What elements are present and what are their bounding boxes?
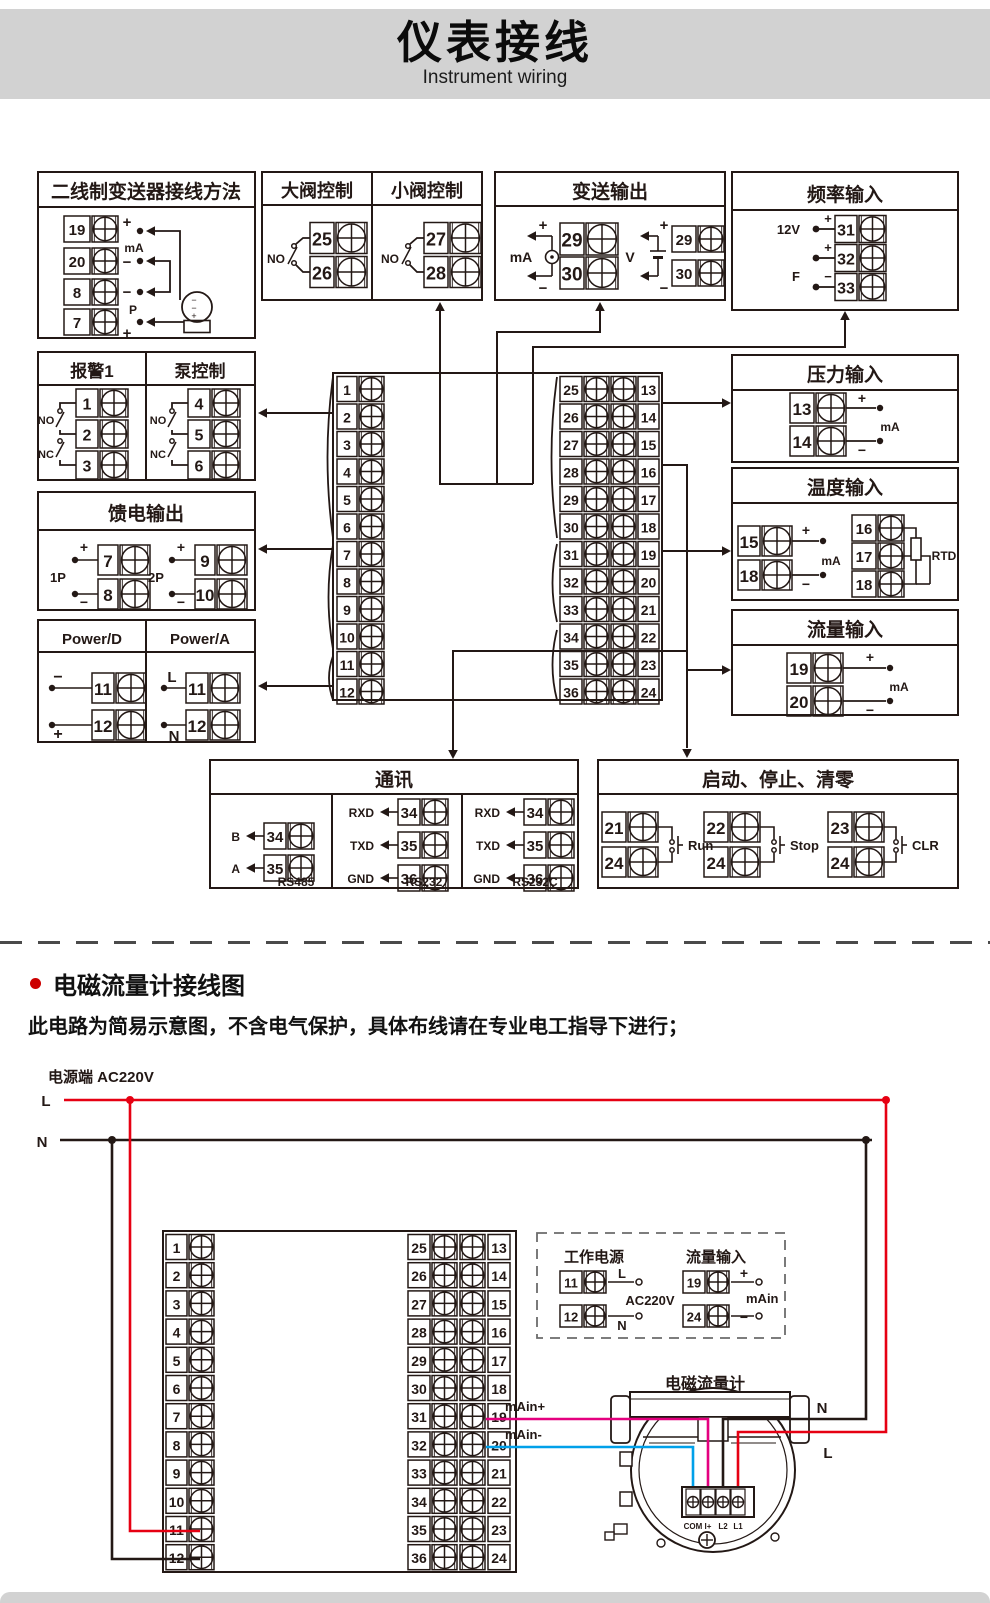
terminal-number: 17 xyxy=(491,1353,507,1369)
terminal-cell: 26 xyxy=(310,257,334,288)
terminal-cell: 35 xyxy=(398,832,420,858)
terminal-cell: 21 xyxy=(488,1460,510,1485)
label: + xyxy=(123,325,132,342)
port-type-label: RS485 xyxy=(278,875,315,889)
screw-terminal-icon xyxy=(854,847,884,877)
terminal-number: 24 xyxy=(687,1309,702,1324)
terminal-cell: 10 xyxy=(337,624,357,649)
arrowhead xyxy=(258,408,267,418)
box-title: 压力输入 xyxy=(807,363,883,386)
terminal-number: 2 xyxy=(173,1268,181,1284)
terminal-cell: 33 xyxy=(560,597,582,622)
label: − xyxy=(177,594,185,610)
label: + xyxy=(740,1265,748,1281)
terminal-cell: 36 xyxy=(408,1545,430,1570)
label: AC220V xyxy=(625,1293,674,1308)
terminal-number: 20 xyxy=(641,575,657,591)
terminal-number: 26 xyxy=(411,1268,427,1284)
arrowhead xyxy=(146,226,155,236)
screw-terminal-icon xyxy=(210,710,240,740)
box-title: 小阀控制 xyxy=(391,180,463,201)
terminal-number: 13 xyxy=(641,382,657,398)
screw-terminal-icon xyxy=(878,515,904,541)
label: N xyxy=(169,728,180,745)
terminal-cell: 2 xyxy=(166,1263,187,1288)
terminal-number: 2 xyxy=(343,410,351,426)
wire xyxy=(168,412,176,427)
terminal-number: 24 xyxy=(707,854,726,873)
screw-terminal-icon xyxy=(432,1319,457,1344)
label: NC xyxy=(150,449,166,461)
terminal-number: 21 xyxy=(491,1466,507,1482)
wire xyxy=(884,853,896,862)
label: + xyxy=(177,539,185,555)
terminal-number: 27 xyxy=(426,229,446,249)
box-start-stop-clear: 启动、停止、清零 xyxy=(598,760,958,888)
open-terminal xyxy=(772,840,776,844)
screw-terminal-icon xyxy=(584,432,609,457)
box-title: 启动、停止、清零 xyxy=(702,768,855,791)
terminal-number: 33 xyxy=(411,1466,427,1482)
junction-dot xyxy=(137,258,143,264)
port-type-label: RS232C xyxy=(512,875,558,889)
terminal-cell: 19 xyxy=(638,542,659,567)
terminal-number: 11 xyxy=(188,680,206,699)
screw-terminal-icon xyxy=(212,389,240,417)
terminal-cell: 26 xyxy=(560,404,582,429)
screw-terminal-icon xyxy=(460,1432,485,1457)
label: L xyxy=(618,1266,626,1281)
terminal-number: 4 xyxy=(343,465,351,481)
label: TXD xyxy=(476,839,500,853)
terminal-number: 26 xyxy=(563,410,579,426)
terminal-cell: 14 xyxy=(638,404,659,429)
open-terminal xyxy=(170,439,174,443)
label: + xyxy=(866,649,874,665)
screw-terminal-icon xyxy=(359,514,384,539)
screw-terminal-icon xyxy=(120,545,150,575)
terminal-number: 25 xyxy=(563,382,579,398)
terminal-cell: 8 xyxy=(64,279,90,305)
terminal-cell: 2 xyxy=(76,420,98,448)
terminal-cell: 13 xyxy=(488,1235,510,1260)
terminal-cell: 15 xyxy=(488,1291,510,1316)
terminal-number: 3 xyxy=(83,459,92,476)
terminal-cell: 12 xyxy=(186,710,208,740)
wire xyxy=(172,430,188,434)
terminal-cell: 7 xyxy=(98,545,118,575)
screw-terminal-icon xyxy=(189,1347,214,1372)
screw-terminal-icon xyxy=(116,673,146,703)
label: L xyxy=(41,1093,50,1110)
screw-terminal-icon xyxy=(359,487,384,512)
label: mAin xyxy=(746,1291,779,1306)
arrowhead xyxy=(640,271,649,281)
label: − xyxy=(824,269,832,284)
terminal-cell: 35 xyxy=(560,652,582,677)
screw-terminal-icon xyxy=(359,597,384,622)
terminal-number: 31 xyxy=(411,1409,427,1425)
screw-terminal-icon xyxy=(92,279,118,305)
label: mA xyxy=(889,680,909,694)
terminal-cell: 34 xyxy=(264,823,286,849)
page: 仪表接线 Instrument wiring 二线制变送器接线方法192087+… xyxy=(0,0,990,1603)
terminal-number: 1 xyxy=(173,1240,181,1256)
arrowhead xyxy=(146,317,155,327)
open-terminal xyxy=(58,409,62,413)
terminal-number: 15 xyxy=(641,437,657,453)
wire xyxy=(760,827,774,839)
label: L xyxy=(167,669,176,686)
central-terminal-strip: 1251322614327154281652917630187311983220… xyxy=(328,373,663,704)
box-title: 流量输入 xyxy=(807,618,883,641)
open-terminal xyxy=(894,840,898,844)
wire-label-main-plus: mAin+ xyxy=(505,1399,546,1414)
screw-terminal-icon xyxy=(189,1404,214,1429)
wire xyxy=(553,630,558,700)
terminal-cell: 28 xyxy=(408,1319,430,1344)
terminal-number: 20 xyxy=(69,254,86,271)
label: + xyxy=(53,726,62,743)
box-temperature-input: 温度输入1518+−mA161718RTD xyxy=(732,468,958,600)
screw-terminal-icon xyxy=(628,847,658,877)
wire xyxy=(552,377,558,538)
terminal-cell: 5 xyxy=(337,487,357,512)
terminal-number: 18 xyxy=(740,567,759,586)
wire xyxy=(760,853,774,862)
junction-dot xyxy=(550,255,554,259)
screw-terminal-icon xyxy=(586,223,618,255)
screw-terminal-icon xyxy=(548,799,574,825)
terminal-number: 24 xyxy=(641,685,657,701)
box-feed-output: 馈电输出+−1P78+−2P910 xyxy=(38,492,255,610)
terminal-cell: 3 xyxy=(166,1291,187,1316)
screw-terminal-icon xyxy=(460,1319,485,1344)
screw-terminal-icon xyxy=(611,597,636,622)
label: − xyxy=(866,702,874,718)
screw-terminal-icon xyxy=(432,1376,457,1401)
terminal-cell: 35 xyxy=(524,832,546,858)
arrowhead xyxy=(146,256,155,266)
terminal-cell: 6 xyxy=(188,451,210,479)
open-terminal xyxy=(406,244,411,249)
screw-terminal-icon xyxy=(92,309,118,335)
rtd-resistor-icon xyxy=(911,538,921,560)
terminal-cell: 24 xyxy=(683,1305,705,1327)
screw-terminal-icon xyxy=(189,1517,214,1542)
arrowhead xyxy=(527,231,536,241)
flowmeter-terminal-label: L1 xyxy=(733,1522,743,1531)
terminal-cell: 24 xyxy=(638,679,659,704)
label: − xyxy=(53,669,62,686)
junction-dot xyxy=(813,255,820,262)
terminal-number: 12 xyxy=(94,717,113,736)
screw-terminal-icon xyxy=(611,459,636,484)
screw-terminal-icon xyxy=(460,1291,485,1316)
terminal-number: 30 xyxy=(563,520,579,536)
arrowhead xyxy=(722,398,731,408)
port-type-label: RS232 xyxy=(406,875,443,889)
terminal-cell: 11 xyxy=(337,652,357,677)
screw-terminal-icon xyxy=(730,847,760,877)
terminal-number: 28 xyxy=(563,465,579,481)
terminal-cell: 29 xyxy=(560,487,582,512)
label: mA xyxy=(821,554,841,568)
screw-terminal-icon xyxy=(707,1305,729,1327)
terminal-number: 34 xyxy=(401,805,418,822)
terminal-number: 14 xyxy=(491,1268,507,1284)
terminal-cell: 18 xyxy=(738,560,760,590)
terminal-cell: 19 xyxy=(683,1271,705,1293)
terminal-number: 18 xyxy=(856,577,873,594)
terminal-number: 6 xyxy=(173,1381,181,1397)
box-title: 二线制变送器接线方法 xyxy=(51,180,241,203)
screw-terminal-icon xyxy=(100,420,128,448)
box-valve-control: 大阀控制小阀控制 xyxy=(262,172,482,300)
label: + xyxy=(824,240,832,255)
terminal-number: 8 xyxy=(173,1437,181,1453)
terminal-number: 28 xyxy=(426,263,446,283)
wire xyxy=(155,231,180,300)
terminal-number: 32 xyxy=(411,1437,427,1453)
terminal-number: 8 xyxy=(343,575,351,591)
screw-terminal-icon xyxy=(611,569,636,594)
terminal-number: 34 xyxy=(411,1494,427,1510)
terminal-cell: 18 xyxy=(638,514,659,539)
terminal-cell: 24 xyxy=(828,847,852,877)
screw-terminal-icon xyxy=(628,812,658,842)
terminal-cell: 31 xyxy=(835,216,857,243)
terminal-cell: 7 xyxy=(337,542,357,567)
screw-terminal-icon xyxy=(189,1432,214,1457)
label: mA xyxy=(880,420,900,434)
label: + xyxy=(858,390,866,406)
terminal-cell: 4 xyxy=(166,1319,187,1344)
screw-terminal-icon xyxy=(432,1404,457,1429)
label: − xyxy=(802,576,810,592)
box-two-wire-transmitter: 二线制变送器接线方法192087+mA−−P+−−+ xyxy=(38,172,255,342)
wire xyxy=(884,827,896,839)
screw-terminal-icon xyxy=(611,514,636,539)
box-power: Power/DPower/A−+1112LN1112 xyxy=(38,620,255,745)
screw-terminal-icon xyxy=(212,420,240,448)
terminal-cell: 7 xyxy=(166,1404,187,1429)
terminal-cell: 26 xyxy=(408,1263,430,1288)
terminal-cell: 9 xyxy=(337,597,357,622)
terminal-cell: 11 xyxy=(166,1517,187,1542)
relay-contacts: NONC xyxy=(150,403,188,465)
terminal-number: 13 xyxy=(793,400,812,419)
terminal-cell: 14 xyxy=(790,426,814,456)
wire xyxy=(658,827,672,839)
terminal-cell: 29 xyxy=(672,226,696,252)
terminal-number: 29 xyxy=(676,232,693,249)
terminal-cell: 25 xyxy=(560,377,582,402)
open-terminal xyxy=(894,848,898,852)
section-note: 此电路为简易示意图，不含电气保护，具体布线请在专业电工指导下进行； xyxy=(28,1010,958,1039)
terminal-number: 12 xyxy=(339,685,355,701)
flowmeter-terminal-label: L2 xyxy=(718,1522,728,1531)
label: NO xyxy=(38,415,55,427)
terminal-cell: 31 xyxy=(560,542,582,567)
screw-terminal-icon xyxy=(217,545,247,575)
terminal-number: 5 xyxy=(195,428,204,445)
arrowhead xyxy=(246,831,255,841)
wire xyxy=(440,311,533,484)
wire xyxy=(296,265,310,272)
terminal-number: 35 xyxy=(401,838,418,855)
screw-terminal-icon xyxy=(611,404,636,429)
label: + xyxy=(802,522,810,538)
terminal-cell: 18 xyxy=(488,1376,510,1401)
terminal-cell: 30 xyxy=(408,1376,430,1401)
terminal-cell: 32 xyxy=(408,1432,430,1457)
terminal-cell: 17 xyxy=(852,543,876,569)
label: − xyxy=(123,254,132,271)
terminal-cell: 1 xyxy=(337,377,357,402)
rim-tab xyxy=(620,1452,632,1466)
terminal-number: 19 xyxy=(687,1275,701,1290)
screw-terminal-icon xyxy=(450,257,481,288)
terminal-cell: 1 xyxy=(166,1235,187,1260)
terminal-number: 35 xyxy=(527,838,544,855)
box-title: 温度输入 xyxy=(807,476,883,499)
screw-terminal-icon xyxy=(189,1488,214,1513)
wire xyxy=(60,430,76,434)
terminal-number: 22 xyxy=(707,819,726,838)
terminal-cell: 15 xyxy=(638,432,659,457)
label: N xyxy=(617,1318,626,1333)
screw-terminal-icon xyxy=(336,223,367,254)
dashed-reference-box: 工作电源流量输入1112LAC220VN1924+mAin− xyxy=(537,1233,785,1338)
button-label: Stop xyxy=(790,838,819,853)
label: + xyxy=(660,217,669,234)
terminal-number: 3 xyxy=(173,1296,181,1312)
terminal-number: 19 xyxy=(641,547,657,563)
box-title: 变送输出 xyxy=(572,180,648,203)
button-label: CLR xyxy=(912,838,939,853)
terminal-cell: 12 xyxy=(166,1545,187,1570)
terminal-number: 13 xyxy=(491,1240,507,1256)
box-title: 大阀控制 xyxy=(281,180,353,201)
screw-terminal-icon xyxy=(432,1517,457,1542)
power-rails: 电源端 AC220VLN xyxy=(37,1068,890,1151)
screw-terminal-icon xyxy=(422,832,448,858)
terminal-number: 29 xyxy=(563,492,579,508)
screw-terminal-icon xyxy=(611,487,636,512)
label: A xyxy=(231,862,240,876)
terminal-number: 36 xyxy=(563,685,579,701)
screw-terminal-icon xyxy=(611,377,636,402)
terminal-cell: 17 xyxy=(638,487,659,512)
label: mA xyxy=(124,241,144,255)
red-bullet-icon xyxy=(30,978,41,989)
screw-terminal-icon xyxy=(288,823,314,849)
terminal-number: 14 xyxy=(641,410,657,426)
screw-terminal-icon xyxy=(359,404,384,429)
terminal-cell: 22 xyxy=(704,812,728,842)
terminal-cell: 11 xyxy=(92,673,114,703)
box-title: Power/A xyxy=(170,631,230,648)
screw-terminal-icon xyxy=(584,514,609,539)
screw-terminal-icon xyxy=(584,652,609,677)
power-source-label: 电源端 AC220V xyxy=(48,1068,154,1086)
label: GND xyxy=(473,872,500,886)
terminal-cell: 11 xyxy=(186,673,208,703)
screw-terminal-icon xyxy=(432,1235,457,1260)
next-section-bar xyxy=(0,1592,990,1603)
terminal-cell: 24 xyxy=(602,847,626,877)
terminal-number: 31 xyxy=(563,547,579,563)
terminal-number: 28 xyxy=(411,1325,427,1341)
box-title: 馈电输出 xyxy=(108,502,184,525)
terminal-number: 5 xyxy=(173,1353,181,1369)
terminal-cell: 28 xyxy=(560,459,582,484)
wire xyxy=(410,238,424,244)
terminal-number: 23 xyxy=(491,1522,507,1538)
terminal-cell: 7 xyxy=(64,309,90,335)
terminal-cell: 31 xyxy=(408,1404,430,1429)
terminal-cell: 12 xyxy=(92,710,114,740)
label: + xyxy=(824,211,832,226)
arrowhead xyxy=(595,302,605,311)
label: N xyxy=(37,1134,48,1151)
terminal-number: 31 xyxy=(837,222,855,239)
wire xyxy=(172,403,188,408)
wire xyxy=(662,465,687,748)
lower-terminal-strip: 1251322614327154281652917630187311983220… xyxy=(163,1231,516,1572)
terminal-cell: 17 xyxy=(488,1347,510,1372)
terminal-number: 30 xyxy=(411,1381,427,1397)
label: RTD xyxy=(932,549,957,563)
terminal-number: 14 xyxy=(793,433,812,452)
terminal-number: 1 xyxy=(343,382,351,398)
case-hole xyxy=(771,1533,779,1541)
terminal-cell: 6 xyxy=(337,514,357,539)
terminal-number: 23 xyxy=(641,657,657,673)
box-title: 报警1 xyxy=(70,361,113,381)
box-flow-input: 流量输入1920+−mA xyxy=(732,610,958,718)
valve-switch: NO xyxy=(267,238,310,272)
terminal-cell: 34 xyxy=(408,1488,430,1513)
terminal-cell: 27 xyxy=(424,223,448,254)
wire xyxy=(168,442,176,457)
wire xyxy=(296,238,310,244)
terminal-cell: 27 xyxy=(560,432,582,457)
screw-terminal-icon xyxy=(359,432,384,457)
screw-terminal-icon xyxy=(762,526,792,556)
terminal-number: 26 xyxy=(312,263,332,283)
terminal-number: 7 xyxy=(73,315,81,332)
cable-gland xyxy=(614,1524,627,1534)
terminal-number: 32 xyxy=(563,575,579,591)
terminal-cell: 22 xyxy=(488,1488,510,1513)
terminal-cell: 4 xyxy=(188,389,210,417)
screw-terminal-icon xyxy=(698,226,724,252)
arrowhead xyxy=(246,863,255,873)
label: + xyxy=(539,217,548,234)
arrowhead xyxy=(840,311,850,320)
terminal-cell: 23 xyxy=(828,812,852,842)
terminal-number: 20 xyxy=(790,693,809,712)
terminal-number: 7 xyxy=(173,1409,181,1425)
label: + xyxy=(191,311,196,321)
arrowhead xyxy=(258,681,267,691)
screw-terminal-icon xyxy=(762,560,792,590)
terminal-number: 16 xyxy=(491,1325,507,1341)
box-alarm-pump: 报警1泵控制 xyxy=(38,352,255,480)
terminal-number: 11 xyxy=(340,657,355,673)
